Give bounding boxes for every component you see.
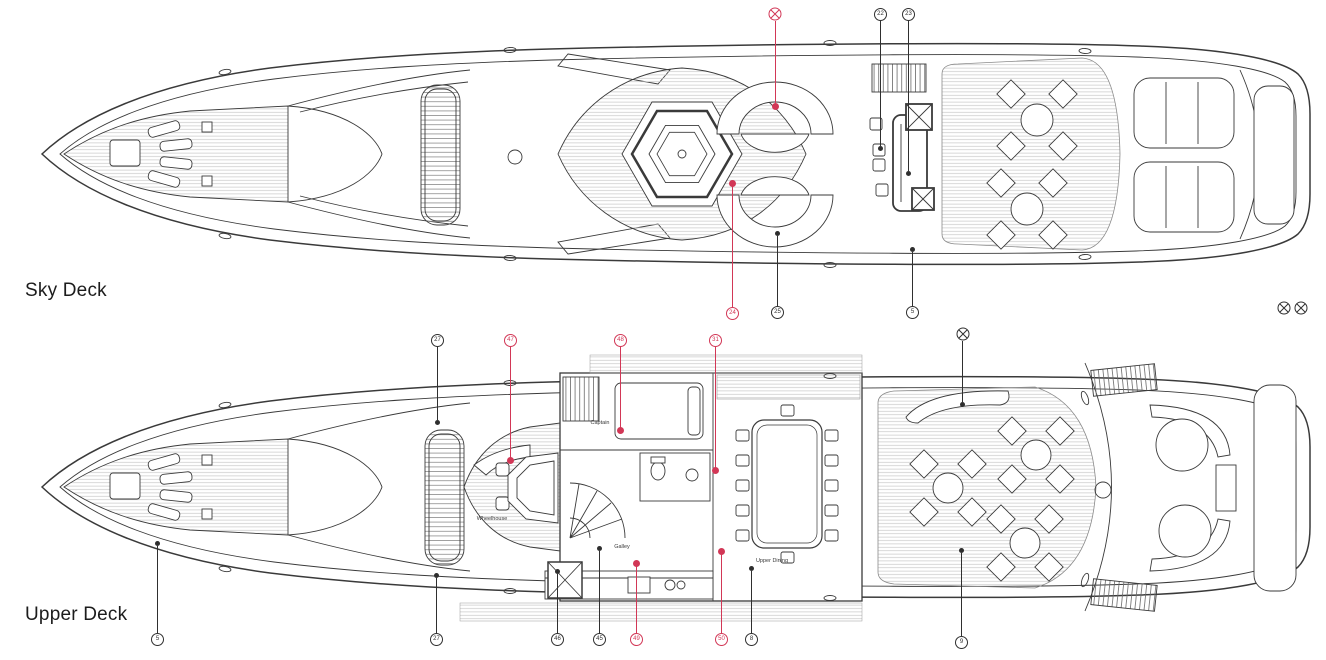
room-label-wheelhouse: Wheelhouse — [457, 516, 527, 522]
room-label-upper-dining: Upper Dining — [737, 558, 807, 564]
leader-dot — [597, 546, 602, 551]
callout-48: 48 — [614, 334, 627, 347]
callout-8: 8 — [745, 633, 758, 646]
deck-fitting — [508, 150, 522, 164]
leader-dot — [910, 247, 915, 252]
wheelhouse — [464, 423, 560, 551]
leader-dot — [906, 171, 911, 176]
callout-46: 46 — [551, 633, 564, 646]
yacht-deck-plan: Sky Deck Upper Deck Wheelhouse Captain G… — [0, 0, 1326, 660]
upper-deck-plan — [30, 345, 1315, 635]
callout-9: 9 — [955, 636, 968, 649]
leader-dot — [960, 402, 965, 407]
leader-dot — [729, 180, 736, 187]
callout-27-top: 27 — [431, 334, 444, 347]
crossed-circle-marker — [1294, 301, 1308, 315]
leader-line — [620, 347, 621, 428]
leader-line — [777, 236, 778, 306]
upper-deck-title: Upper Deck — [25, 604, 127, 626]
leader-dot — [772, 103, 779, 110]
leader-dot — [155, 541, 160, 546]
leader-line — [157, 546, 158, 633]
leader-line — [557, 574, 558, 633]
leader-line — [636, 566, 637, 633]
leader-line — [775, 21, 776, 103]
leader-dot — [775, 231, 780, 236]
leader-dot — [555, 569, 560, 574]
leader-line — [880, 21, 881, 146]
leader-line — [715, 347, 716, 468]
callout-24: 24 — [726, 307, 739, 320]
leader-dot — [718, 548, 725, 555]
leader-line — [599, 551, 600, 633]
foredeck — [64, 106, 288, 202]
crossed-circle-marker — [956, 327, 970, 341]
leader-line — [962, 341, 963, 402]
callout-50: 50 — [715, 633, 728, 646]
leader-dot — [617, 427, 624, 434]
crossed-circle-marker — [1277, 301, 1291, 315]
leader-line — [912, 252, 913, 306]
leader-line — [510, 347, 511, 458]
leader-line — [437, 347, 438, 420]
leader-dot — [878, 146, 883, 151]
leader-dot — [507, 457, 514, 464]
callout-25: 25 — [771, 306, 784, 319]
callout-5-bottom: 5 — [151, 633, 164, 646]
aft-deck — [942, 58, 1120, 250]
leader-dot — [749, 566, 754, 571]
foredeck — [64, 439, 288, 535]
leader-line — [721, 554, 722, 633]
leader-dot — [712, 467, 719, 474]
leader-dot — [633, 560, 640, 567]
callout-22: 22 — [874, 8, 887, 21]
leader-line — [961, 553, 962, 636]
sky-deck-plan — [30, 12, 1315, 302]
callout-5: 5 — [906, 306, 919, 319]
room-label-captain: Captain — [565, 420, 635, 426]
leader-line — [908, 21, 909, 171]
leader-dot — [959, 548, 964, 553]
leader-line — [751, 571, 752, 633]
callout-49: 49 — [630, 633, 643, 646]
leader-line — [436, 578, 437, 633]
callout-23: 23 — [902, 8, 915, 21]
stern-lounge — [1080, 363, 1296, 611]
callout-31: 31 — [709, 334, 722, 347]
callout-27-bottom: 27 — [430, 633, 443, 646]
windscreen — [425, 430, 464, 565]
leader-line — [732, 186, 733, 307]
leader-dot — [434, 573, 439, 578]
captain-cabin — [615, 383, 703, 439]
callout-45: 45 — [593, 633, 606, 646]
leader-dot — [435, 420, 440, 425]
crossed-circle-marker — [768, 7, 782, 21]
sky-deck-title: Sky Deck — [25, 280, 107, 302]
skylight — [421, 85, 460, 225]
callout-47: 47 — [504, 334, 517, 347]
stern-sunpads — [1134, 70, 1294, 239]
aft-deck — [878, 387, 1096, 588]
